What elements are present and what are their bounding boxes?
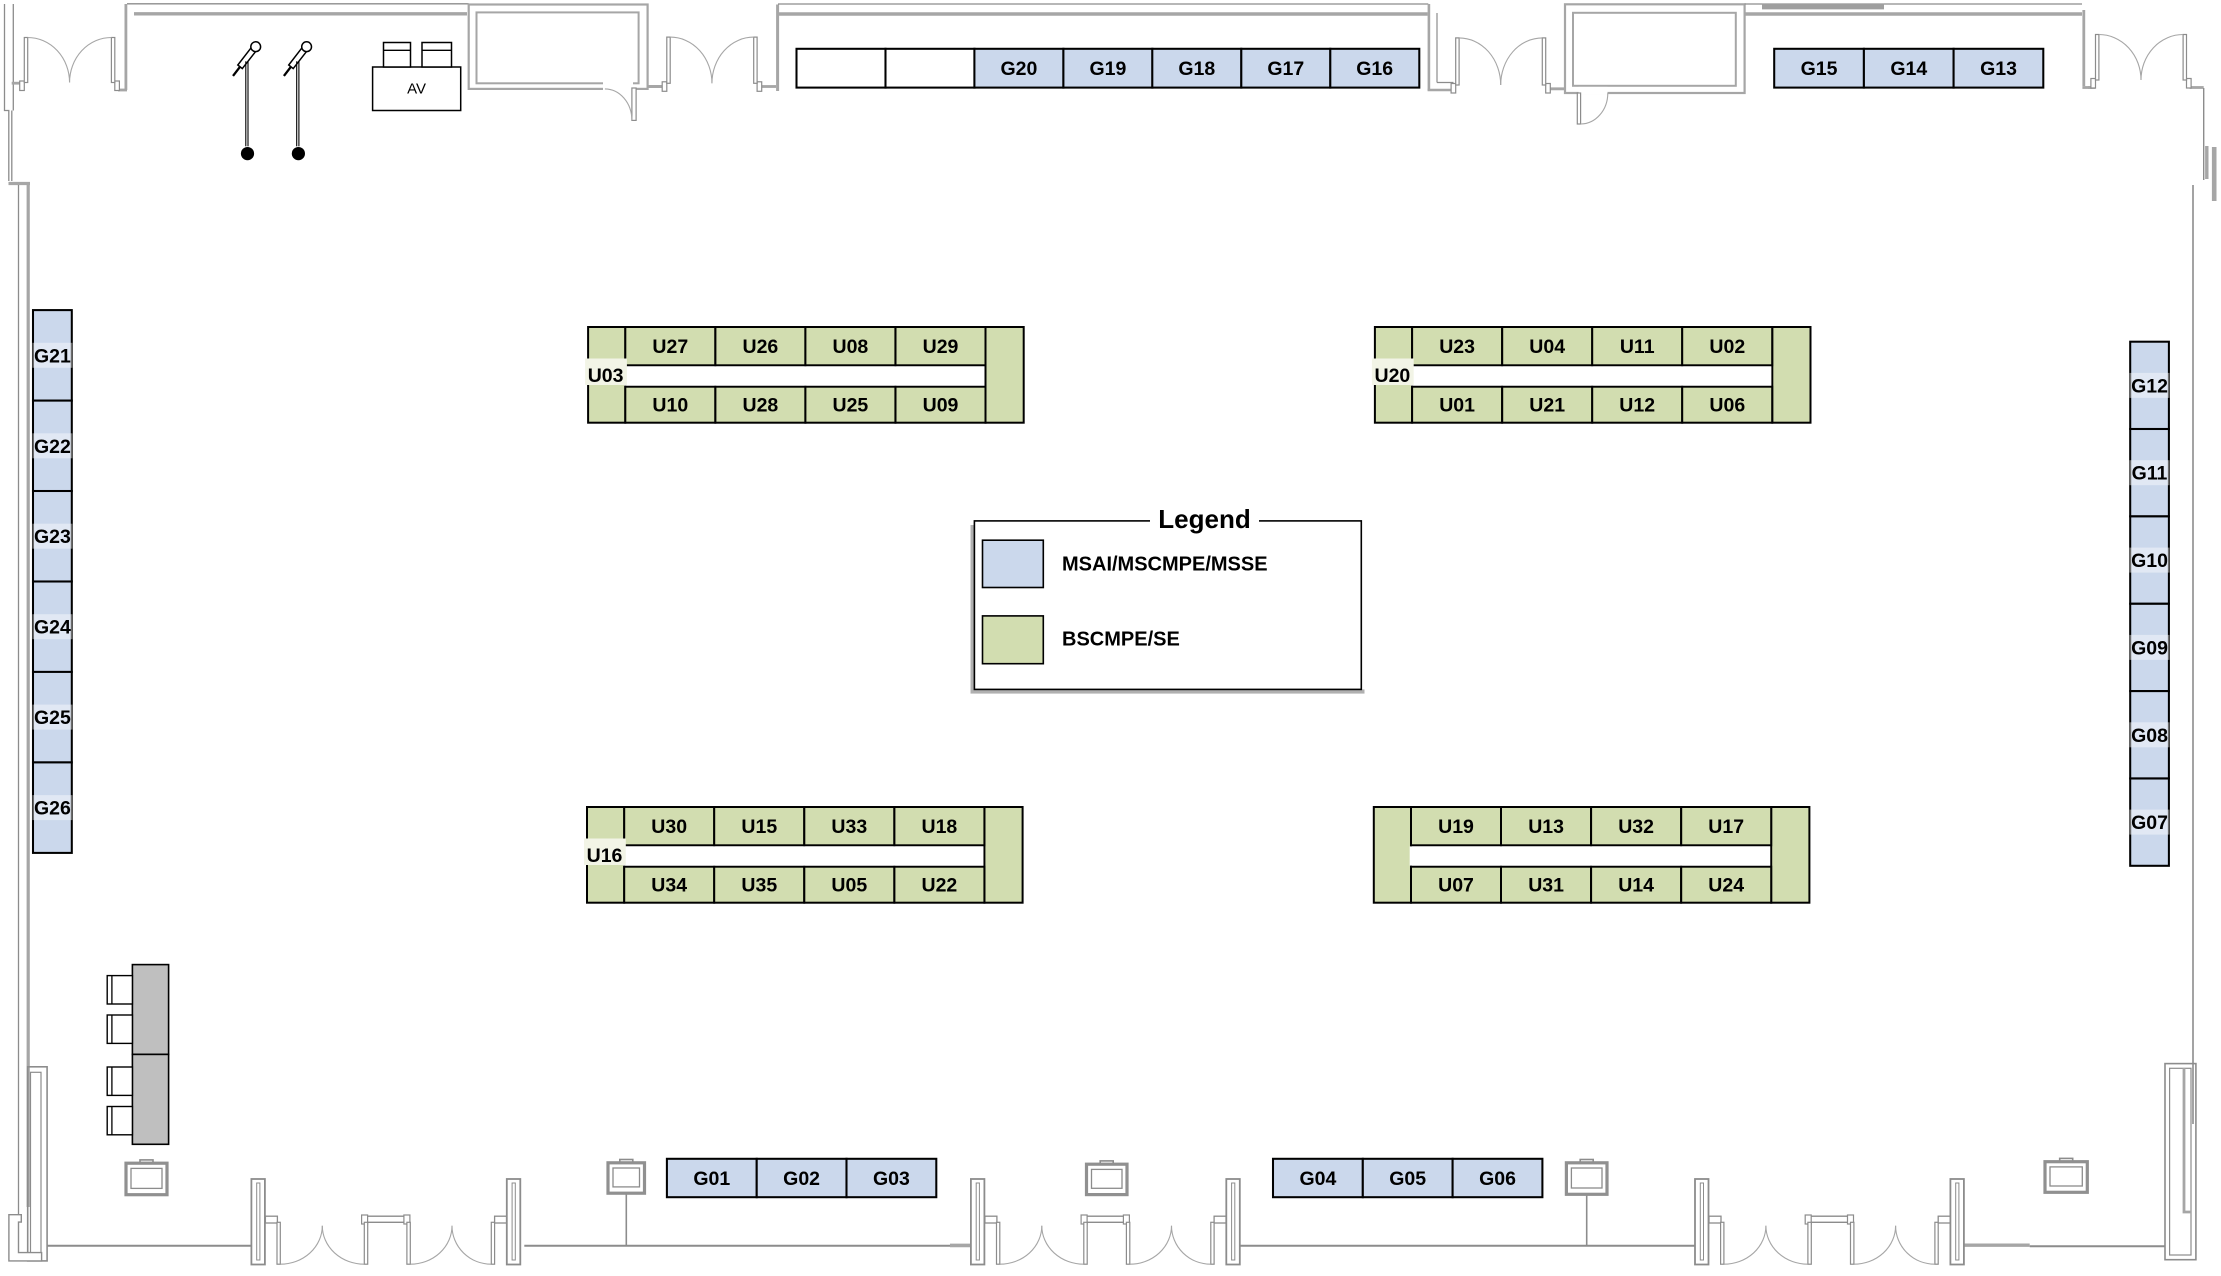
svg-text:U15: U15 (741, 816, 777, 838)
svg-text:U10: U10 (652, 395, 688, 417)
svg-text:U29: U29 (923, 336, 959, 358)
svg-text:U17: U17 (1708, 816, 1744, 838)
svg-text:U09: U09 (923, 395, 959, 417)
svg-text:U25: U25 (833, 395, 869, 417)
svg-text:BSCMPE/SE: BSCMPE/SE (1062, 629, 1180, 651)
svg-text:U11: U11 (1620, 336, 1655, 358)
svg-text:G25: G25 (34, 707, 71, 729)
svg-text:G02: G02 (783, 1168, 820, 1190)
svg-text:AV: AV (407, 81, 426, 98)
svg-text:G15: G15 (1801, 58, 1838, 80)
svg-text:G14: G14 (1890, 58, 1927, 80)
svg-text:G17: G17 (1267, 58, 1304, 80)
svg-text:MSAI/MSCMPE/MSSE: MSAI/MSCMPE/MSSE (1062, 554, 1268, 576)
svg-text:U21: U21 (1529, 395, 1565, 417)
svg-text:U07: U07 (1438, 875, 1474, 897)
svg-text:G07: G07 (2131, 812, 2168, 834)
svg-text:U05: U05 (831, 875, 867, 897)
svg-text:U33: U33 (831, 816, 867, 838)
svg-text:U31: U31 (1528, 875, 1564, 897)
svg-text:U27: U27 (652, 336, 688, 358)
svg-text:G21: G21 (34, 345, 71, 367)
svg-text:U28: U28 (743, 395, 779, 417)
svg-text:U35: U35 (741, 875, 777, 897)
svg-text:G20: G20 (1000, 58, 1037, 80)
svg-text:G19: G19 (1089, 58, 1126, 80)
svg-text:G12: G12 (2131, 375, 2168, 397)
svg-text:G23: G23 (34, 526, 71, 548)
svg-text:U30: U30 (651, 816, 687, 838)
svg-text:U04: U04 (1529, 336, 1565, 358)
svg-text:U12: U12 (1619, 395, 1655, 417)
svg-text:G06: G06 (1479, 1168, 1516, 1190)
svg-text:U24: U24 (1708, 875, 1744, 897)
svg-text:G01: G01 (693, 1168, 730, 1190)
svg-text:U18: U18 (922, 816, 958, 838)
svg-text:U02: U02 (1709, 336, 1745, 358)
svg-text:U03: U03 (588, 365, 624, 387)
svg-text:G13: G13 (1980, 58, 2017, 80)
svg-text:G05: G05 (1389, 1168, 1426, 1190)
svg-text:U16: U16 (587, 845, 623, 867)
svg-text:G11: G11 (2132, 463, 2168, 485)
svg-text:G04: G04 (1299, 1168, 1336, 1190)
svg-text:G08: G08 (2131, 725, 2168, 747)
svg-text:U34: U34 (651, 875, 687, 897)
svg-text:U08: U08 (833, 336, 869, 358)
svg-text:U19: U19 (1438, 816, 1474, 838)
svg-text:Legend: Legend (1158, 504, 1250, 534)
svg-text:G10: G10 (2131, 550, 2168, 572)
svg-text:U01: U01 (1439, 395, 1475, 417)
svg-text:U20: U20 (1375, 365, 1411, 387)
svg-text:U14: U14 (1618, 875, 1654, 897)
svg-text:G24: G24 (34, 617, 71, 639)
svg-text:U23: U23 (1439, 336, 1475, 358)
svg-text:G03: G03 (873, 1168, 910, 1190)
svg-text:G18: G18 (1178, 58, 1215, 80)
svg-text:U26: U26 (743, 336, 779, 358)
svg-text:G22: G22 (34, 436, 71, 458)
svg-text:G09: G09 (2131, 637, 2168, 659)
svg-text:U22: U22 (922, 875, 958, 897)
svg-text:U32: U32 (1618, 816, 1654, 838)
svg-text:U13: U13 (1528, 816, 1564, 838)
svg-text:U06: U06 (1709, 395, 1745, 417)
svg-text:G16: G16 (1356, 58, 1393, 80)
svg-text:G26: G26 (34, 798, 71, 820)
